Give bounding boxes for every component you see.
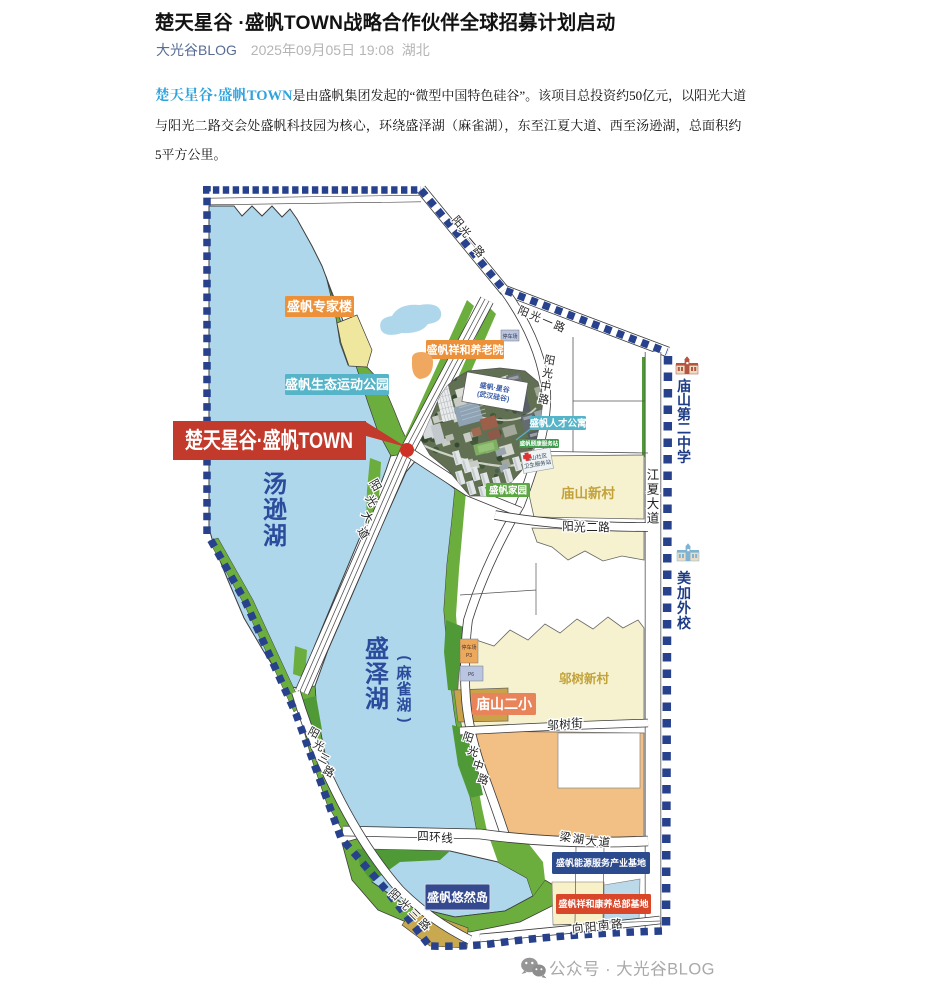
svg-text:庙山新村: 庙山新村 — [561, 485, 615, 501]
svg-text:树: 树 — [559, 717, 571, 731]
svg-text:道: 道 — [598, 834, 611, 849]
svg-text:逊: 逊 — [263, 497, 287, 524]
svg-text:雀: 雀 — [395, 680, 411, 698]
svg-text:学: 学 — [677, 449, 691, 465]
svg-text:盛帆专家楼: 盛帆专家楼 — [287, 299, 352, 314]
svg-text:麻: 麻 — [395, 664, 412, 682]
svg-text:路: 路 — [610, 916, 623, 931]
svg-text:湖: 湖 — [396, 697, 411, 714]
svg-text:盛帆悠然岛: 盛帆悠然岛 — [427, 889, 488, 904]
svg-text:盛帆祥和养老院: 盛帆祥和养老院 — [427, 342, 504, 356]
svg-text:四: 四 — [417, 831, 429, 843]
svg-text:盛帆祥和康养总部基地: 盛帆祥和康养总部基地 — [558, 898, 648, 909]
svg-text:湖: 湖 — [263, 523, 287, 550]
svg-text:P6: P6 — [468, 672, 474, 678]
svg-text:加: 加 — [676, 585, 691, 601]
svg-text:路: 路 — [537, 392, 550, 407]
svg-text:向: 向 — [571, 921, 584, 936]
svg-text:盛帆人才公寓: 盛帆人才公寓 — [529, 417, 586, 429]
svg-text:盛帆能源服务产业基地: 盛帆能源服务产业基地 — [556, 857, 646, 868]
svg-text:阳: 阳 — [584, 921, 597, 935]
svg-text:盛帆颐康服务站: 盛帆颐康服务站 — [520, 439, 559, 447]
svg-text:道: 道 — [647, 512, 660, 526]
svg-text:阳: 阳 — [543, 353, 556, 368]
svg-text:路: 路 — [598, 520, 610, 534]
svg-text:校: 校 — [677, 615, 692, 631]
svg-text:盛: 盛 — [365, 635, 389, 663]
svg-text:美: 美 — [677, 570, 692, 586]
svg-text:(: ( — [396, 656, 413, 661]
svg-text:公众号 · 大光谷BLOG: 公众号 · 大光谷BLOG — [549, 960, 715, 979]
svg-text:夏: 夏 — [647, 483, 660, 497]
svg-text:阳: 阳 — [562, 520, 574, 533]
svg-text:梁: 梁 — [559, 829, 572, 844]
svg-text:泽: 泽 — [365, 661, 389, 688]
svg-text:盛帆家园: 盛帆家园 — [489, 484, 527, 496]
svg-text:P3: P3 — [466, 653, 472, 659]
svg-text:中: 中 — [539, 379, 552, 394]
svg-text:湖: 湖 — [365, 686, 389, 713]
svg-text:邬树新村: 邬树新村 — [559, 671, 610, 686]
svg-text:二: 二 — [586, 522, 598, 534]
svg-text:庙山二小: 庙山二小 — [476, 696, 532, 712]
svg-text:停车场: 停车场 — [461, 644, 476, 651]
svg-text:街: 街 — [571, 716, 583, 730]
svg-text:楚天星谷·盛帆TOWN: 楚天星谷·盛帆TOWN — [185, 428, 353, 453]
svg-text:光: 光 — [574, 520, 586, 534]
svg-text:线: 线 — [441, 831, 453, 845]
svg-text:江: 江 — [647, 468, 660, 482]
svg-text:停车场: 停车场 — [502, 333, 517, 340]
svg-text:): ) — [396, 718, 413, 723]
svg-text:湖: 湖 — [572, 831, 585, 846]
svg-text:汤: 汤 — [263, 471, 287, 498]
svg-text:环: 环 — [429, 832, 441, 844]
svg-text:路: 路 — [552, 319, 567, 335]
svg-text:大: 大 — [647, 497, 660, 511]
svg-text:邬: 邬 — [547, 718, 559, 732]
svg-text:南: 南 — [597, 918, 610, 933]
svg-text:盛帆生态运动公园: 盛帆生态运动公园 — [285, 377, 389, 392]
svg-text:外: 外 — [677, 600, 691, 616]
svg-text:大: 大 — [585, 833, 598, 848]
